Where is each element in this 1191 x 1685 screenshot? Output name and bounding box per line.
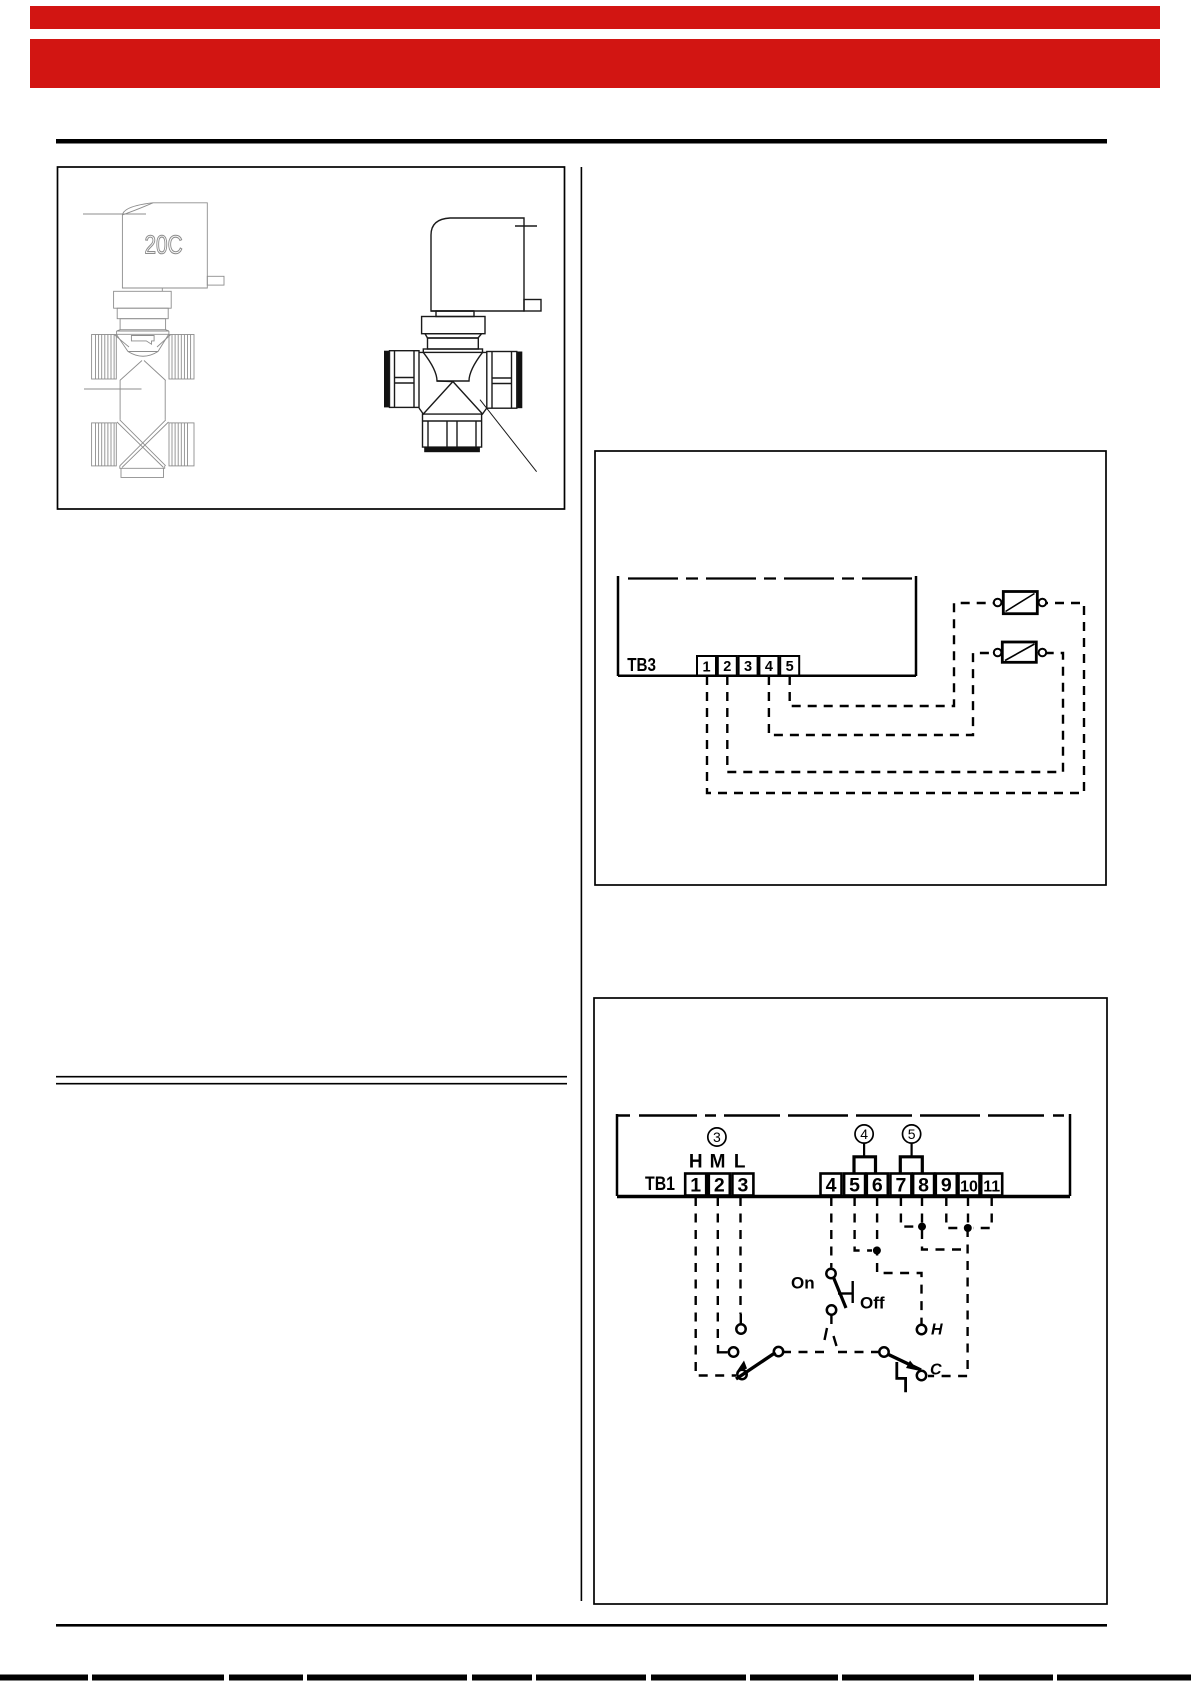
svg-text:3: 3 (737, 1175, 748, 1197)
svg-text:On: On (791, 1274, 815, 1293)
svg-text:TB1: TB1 (645, 1174, 675, 1195)
svg-text:1: 1 (690, 1175, 701, 1197)
svg-text:4: 4 (860, 1126, 868, 1142)
svg-text:H: H (931, 1322, 943, 1339)
svg-text:2: 2 (723, 659, 731, 675)
svg-text:TB3: TB3 (627, 654, 656, 675)
svg-text:10: 10 (960, 1179, 978, 1196)
svg-text:8: 8 (918, 1175, 929, 1197)
svg-text:11: 11 (983, 1179, 1000, 1196)
svg-text:4: 4 (765, 659, 773, 675)
svg-text:9: 9 (941, 1175, 952, 1197)
svg-text:1: 1 (702, 659, 710, 675)
svg-text:6: 6 (872, 1175, 883, 1197)
svg-text:C: C (930, 1362, 942, 1379)
svg-text:2: 2 (714, 1175, 725, 1197)
svg-text:Off: Off (860, 1294, 885, 1313)
svg-text:5: 5 (786, 659, 794, 675)
svg-text:L: L (734, 1152, 746, 1173)
svg-text:3: 3 (713, 1129, 721, 1145)
svg-text:M: M (710, 1152, 726, 1173)
svg-text:20C: 20C (145, 230, 183, 259)
svg-text:7: 7 (895, 1175, 906, 1197)
svg-text:5: 5 (908, 1126, 916, 1142)
svg-text:3: 3 (744, 659, 752, 675)
svg-text:H: H (689, 1152, 703, 1173)
svg-text:4: 4 (826, 1175, 837, 1197)
svg-text:5: 5 (849, 1175, 860, 1197)
